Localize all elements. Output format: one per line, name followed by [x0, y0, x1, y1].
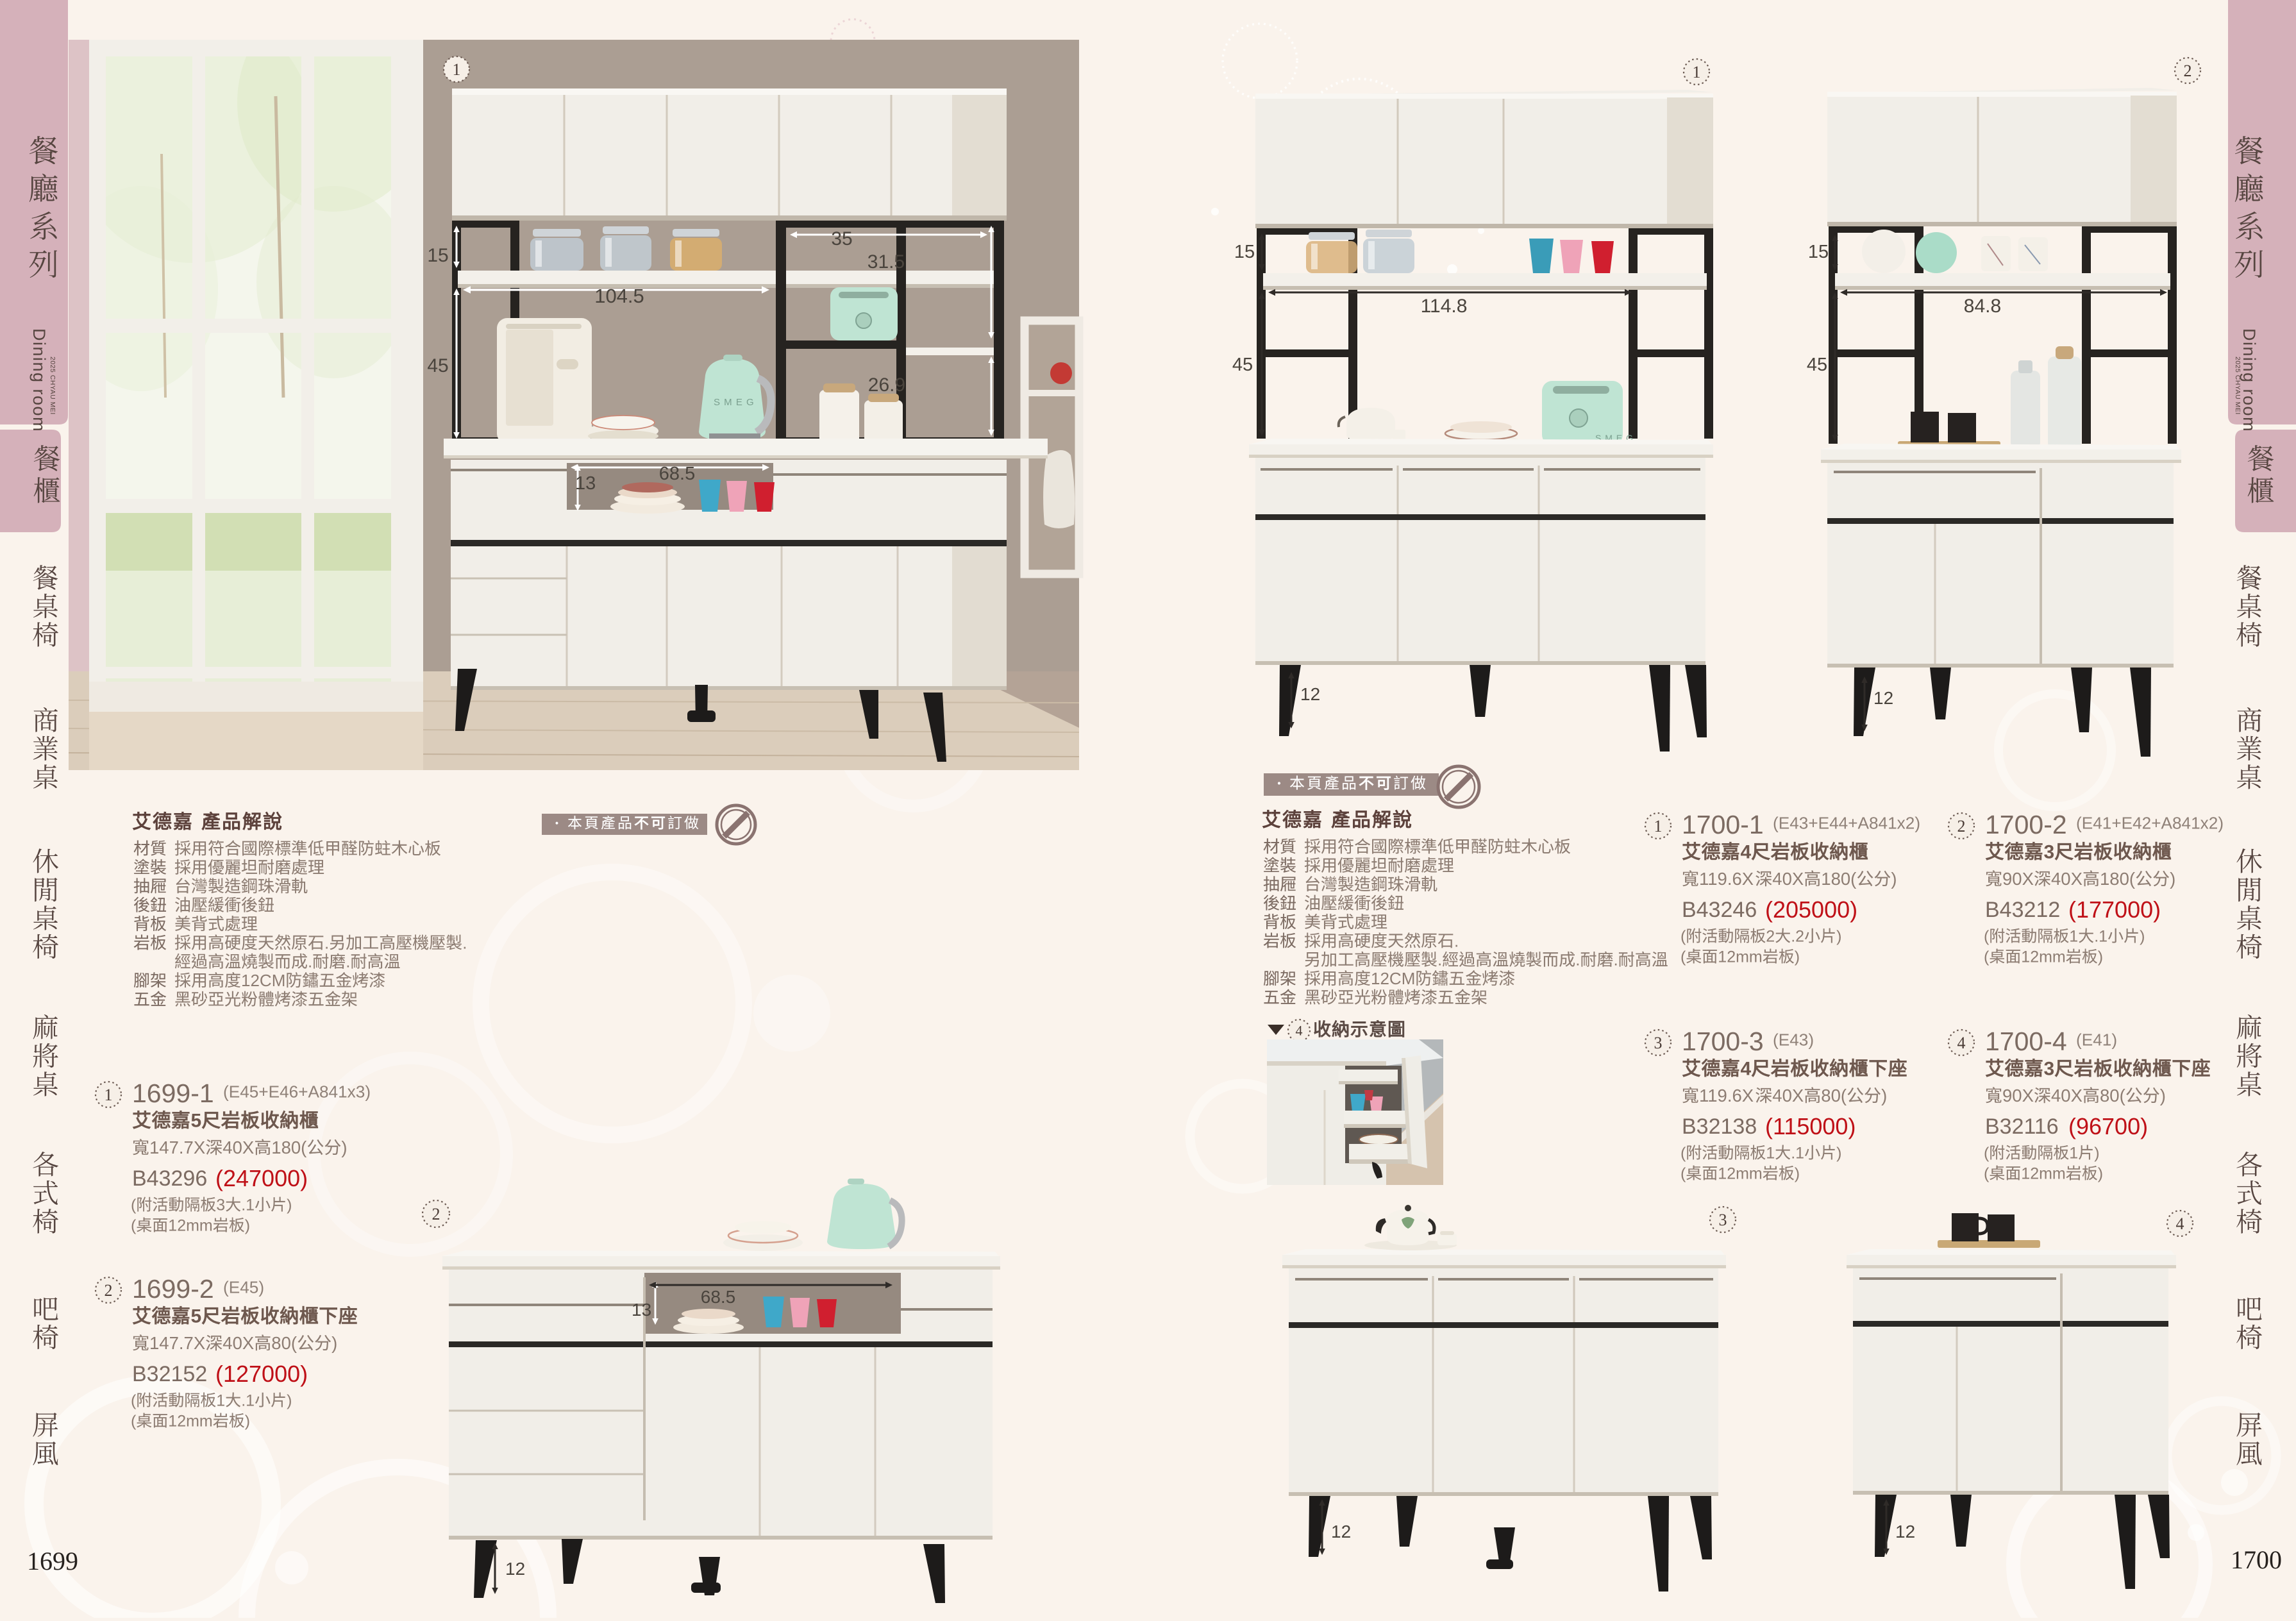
svg-text:180(: 180(: [1821, 869, 1856, 889]
svg-text:.: .: [324, 933, 329, 952]
svg-text:(: (: [131, 1413, 137, 1431]
svg-text:4: 4: [1741, 1059, 1752, 1080]
svg-text:): ): [1795, 1165, 1800, 1183]
svg-text:45: 45: [427, 355, 448, 376]
svg-text:.: .: [308, 952, 312, 971]
svg-text:119.6X: 119.6X: [1699, 1086, 1754, 1105]
svg-text:): ): [1836, 928, 1841, 946]
svg-text:(E43+E44+A841x2): (E43+E44+A841x2): [1773, 814, 1920, 833]
svg-text:5: 5: [191, 1111, 202, 1132]
svg-text:40X: 40X: [1772, 869, 1804, 889]
svg-text:): ): [331, 1333, 337, 1353]
svg-text:12mm: 12mm: [1718, 948, 1762, 966]
svg-text:80(: 80(: [271, 1333, 297, 1353]
svg-text:12mm: 12mm: [2021, 1165, 2065, 1183]
svg-text:2: 2: [1957, 817, 1966, 836]
svg-text:15: 15: [427, 245, 448, 266]
svg-text:.: .: [1454, 931, 1459, 950]
svg-text:13: 13: [632, 1300, 651, 1320]
svg-text:.: .: [346, 952, 350, 971]
svg-text:(: (: [131, 1392, 137, 1410]
svg-text:1: 1: [2069, 928, 2078, 946]
svg-text:): ): [1836, 1145, 1841, 1163]
svg-text:(E43): (E43): [1773, 1030, 1814, 1050]
svg-text:4: 4: [1296, 1022, 1303, 1038]
svg-text:1700-4: 1700-4: [1985, 1027, 2067, 1056]
svg-text:3: 3: [2044, 842, 2055, 863]
svg-text:1700-2: 1700-2: [1985, 810, 2067, 839]
svg-text:15: 15: [1808, 242, 1829, 262]
svg-text:3: 3: [2044, 1059, 2055, 1080]
svg-text:31.5: 31.5: [867, 251, 905, 273]
svg-text:3: 3: [1719, 1211, 1727, 1229]
svg-text:): ): [1881, 1086, 1887, 1105]
svg-text:): ): [2098, 948, 2103, 966]
svg-text:): ): [341, 1138, 347, 1157]
svg-text:.2: .2: [1791, 928, 1804, 946]
svg-text:45: 45: [1232, 355, 1253, 375]
svg-text:(127000): (127000): [215, 1361, 308, 1387]
svg-text:12: 12: [1873, 688, 1893, 708]
svg-text:(E45+E46+A841x3): (E45+E46+A841x3): [223, 1082, 371, 1102]
svg-text:B43212: B43212: [1985, 898, 2060, 922]
svg-text:(E41+E42+A841x2): (E41+E42+A841x2): [2076, 814, 2224, 833]
svg-text:4: 4: [1741, 842, 1752, 863]
svg-text:(: (: [131, 1197, 137, 1214]
svg-text:): ): [2140, 928, 2145, 946]
svg-text:1: 1: [216, 1392, 225, 1410]
svg-text:12: 12: [1331, 1522, 1351, 1541]
svg-text:1700-1: 1700-1: [1682, 810, 1764, 839]
svg-text:4: 4: [1957, 1034, 1966, 1052]
svg-text:.1: .1: [241, 1197, 255, 1214]
svg-text:B32138: B32138: [1682, 1114, 1757, 1139]
svg-text:180(: 180(: [271, 1138, 306, 1157]
svg-text:1699-1: 1699-1: [132, 1079, 214, 1108]
svg-text:12CM: 12CM: [1371, 969, 1415, 988]
svg-text:(247000): (247000): [215, 1165, 308, 1191]
svg-text:13: 13: [575, 473, 596, 494]
svg-text:): ): [245, 1217, 250, 1235]
svg-text:.: .: [1614, 950, 1618, 970]
svg-text:): ): [1795, 948, 1800, 966]
svg-text:): ): [287, 1197, 292, 1214]
svg-text:3: 3: [1654, 1034, 1663, 1052]
svg-text:(E45): (E45): [223, 1278, 264, 1297]
svg-text:12: 12: [1300, 684, 1320, 704]
svg-text:1: 1: [2069, 1145, 2078, 1163]
svg-text:12mm: 12mm: [168, 1217, 212, 1235]
svg-text:2: 2: [2184, 62, 2192, 80]
svg-text:90X: 90X: [2002, 869, 2034, 889]
svg-text:2025 CHYAU MEI: 2025 CHYAU MEI: [2234, 357, 2242, 415]
svg-text:12mm: 12mm: [168, 1413, 212, 1431]
svg-text:(205000): (205000): [1765, 896, 1857, 923]
svg-text:40X: 40X: [222, 1138, 254, 1157]
svg-text:68.5: 68.5: [701, 1287, 736, 1307]
svg-text:2025 CHYAU MEI: 2025 CHYAU MEI: [49, 357, 56, 415]
svg-text:12: 12: [505, 1559, 525, 1579]
svg-text:1: 1: [453, 60, 461, 79]
svg-text:.: .: [462, 933, 467, 952]
svg-text:.1: .1: [1791, 1145, 1804, 1163]
svg-text:): ): [287, 1392, 292, 1410]
svg-text:(: (: [1680, 928, 1686, 946]
svg-text:): ): [2160, 1086, 2166, 1105]
svg-text:2: 2: [432, 1205, 440, 1223]
svg-text:(: (: [1680, 1165, 1686, 1183]
svg-text:104.5: 104.5: [594, 285, 644, 307]
svg-text:4: 4: [2176, 1214, 2184, 1233]
svg-text:147.7X: 147.7X: [149, 1333, 205, 1353]
svg-text:84.8: 84.8: [1964, 296, 2001, 317]
svg-text:68.5: 68.5: [659, 464, 695, 484]
svg-text:(: (: [1984, 1145, 1990, 1163]
svg-text:40X: 40X: [2051, 1086, 2082, 1105]
svg-text:1700-3: 1700-3: [1682, 1027, 1764, 1056]
svg-text:12mm: 12mm: [2021, 948, 2065, 966]
svg-text:80(: 80(: [2100, 1086, 2125, 1105]
svg-text:2: 2: [105, 1281, 113, 1300]
svg-text:119.6X: 119.6X: [1699, 869, 1754, 889]
svg-text:147.7X: 147.7X: [149, 1138, 205, 1157]
svg-text:90X: 90X: [2002, 1086, 2034, 1105]
svg-text:(: (: [1984, 948, 1990, 966]
svg-text:(: (: [1984, 928, 1990, 946]
svg-text:): ): [245, 1413, 250, 1431]
svg-text:12: 12: [1895, 1522, 1915, 1541]
svg-text:B32116: B32116: [1985, 1114, 2059, 1139]
svg-text:26.9: 26.9: [868, 374, 905, 396]
svg-text:S M E G: S M E G: [714, 397, 755, 408]
svg-text:B43246: B43246: [1682, 898, 1757, 922]
svg-text:15: 15: [1234, 242, 1255, 262]
svg-text:40X: 40X: [1772, 1086, 1804, 1105]
svg-text:180(: 180(: [2100, 869, 2135, 889]
svg-text:B43296: B43296: [132, 1166, 207, 1191]
svg-text:40X: 40X: [2051, 869, 2082, 889]
svg-text:Dining room: Dining room: [2240, 328, 2259, 432]
svg-text:1: 1: [1766, 1145, 1775, 1163]
svg-text:.1: .1: [2094, 928, 2107, 946]
svg-text:1700: 1700: [2231, 1545, 2282, 1574]
svg-text:(96700): (96700): [2068, 1113, 2148, 1139]
svg-text:(E41): (E41): [2076, 1030, 2117, 1050]
svg-text:1: 1: [1654, 817, 1663, 836]
svg-text:(177000): (177000): [2068, 896, 2161, 923]
svg-text:): ): [2098, 1165, 2103, 1183]
svg-text:1: 1: [1693, 63, 1701, 81]
svg-text:): ): [2094, 1145, 2099, 1163]
svg-text:(: (: [1680, 1145, 1686, 1163]
svg-text:Dining room: Dining room: [29, 328, 49, 432]
svg-text:1: 1: [105, 1086, 113, 1104]
svg-text:3: 3: [216, 1197, 225, 1214]
svg-text:35: 35: [831, 228, 852, 249]
svg-text:114.8: 114.8: [1421, 296, 1468, 317]
svg-text:1699: 1699: [27, 1547, 78, 1575]
svg-text:.: .: [1437, 950, 1442, 970]
svg-text:40X: 40X: [222, 1333, 254, 1353]
svg-text:(115000): (115000): [1765, 1113, 1856, 1139]
svg-text:2: 2: [1766, 928, 1775, 946]
svg-text:(: (: [1680, 948, 1686, 966]
svg-text:(: (: [131, 1217, 137, 1235]
svg-text:): ): [1891, 869, 1897, 889]
svg-text:.: .: [1575, 950, 1580, 970]
svg-text:12CM: 12CM: [241, 971, 285, 990]
svg-text:1699-2: 1699-2: [132, 1274, 214, 1304]
svg-text:B32152: B32152: [132, 1362, 207, 1386]
svg-text:(: (: [1984, 1165, 1990, 1183]
svg-text:5: 5: [191, 1306, 202, 1327]
svg-text:): ): [2170, 869, 2175, 889]
svg-text:.1: .1: [241, 1392, 255, 1410]
svg-text:80(: 80(: [1821, 1086, 1847, 1105]
svg-text:12mm: 12mm: [1718, 1165, 1762, 1183]
svg-text:45: 45: [1807, 355, 1827, 375]
